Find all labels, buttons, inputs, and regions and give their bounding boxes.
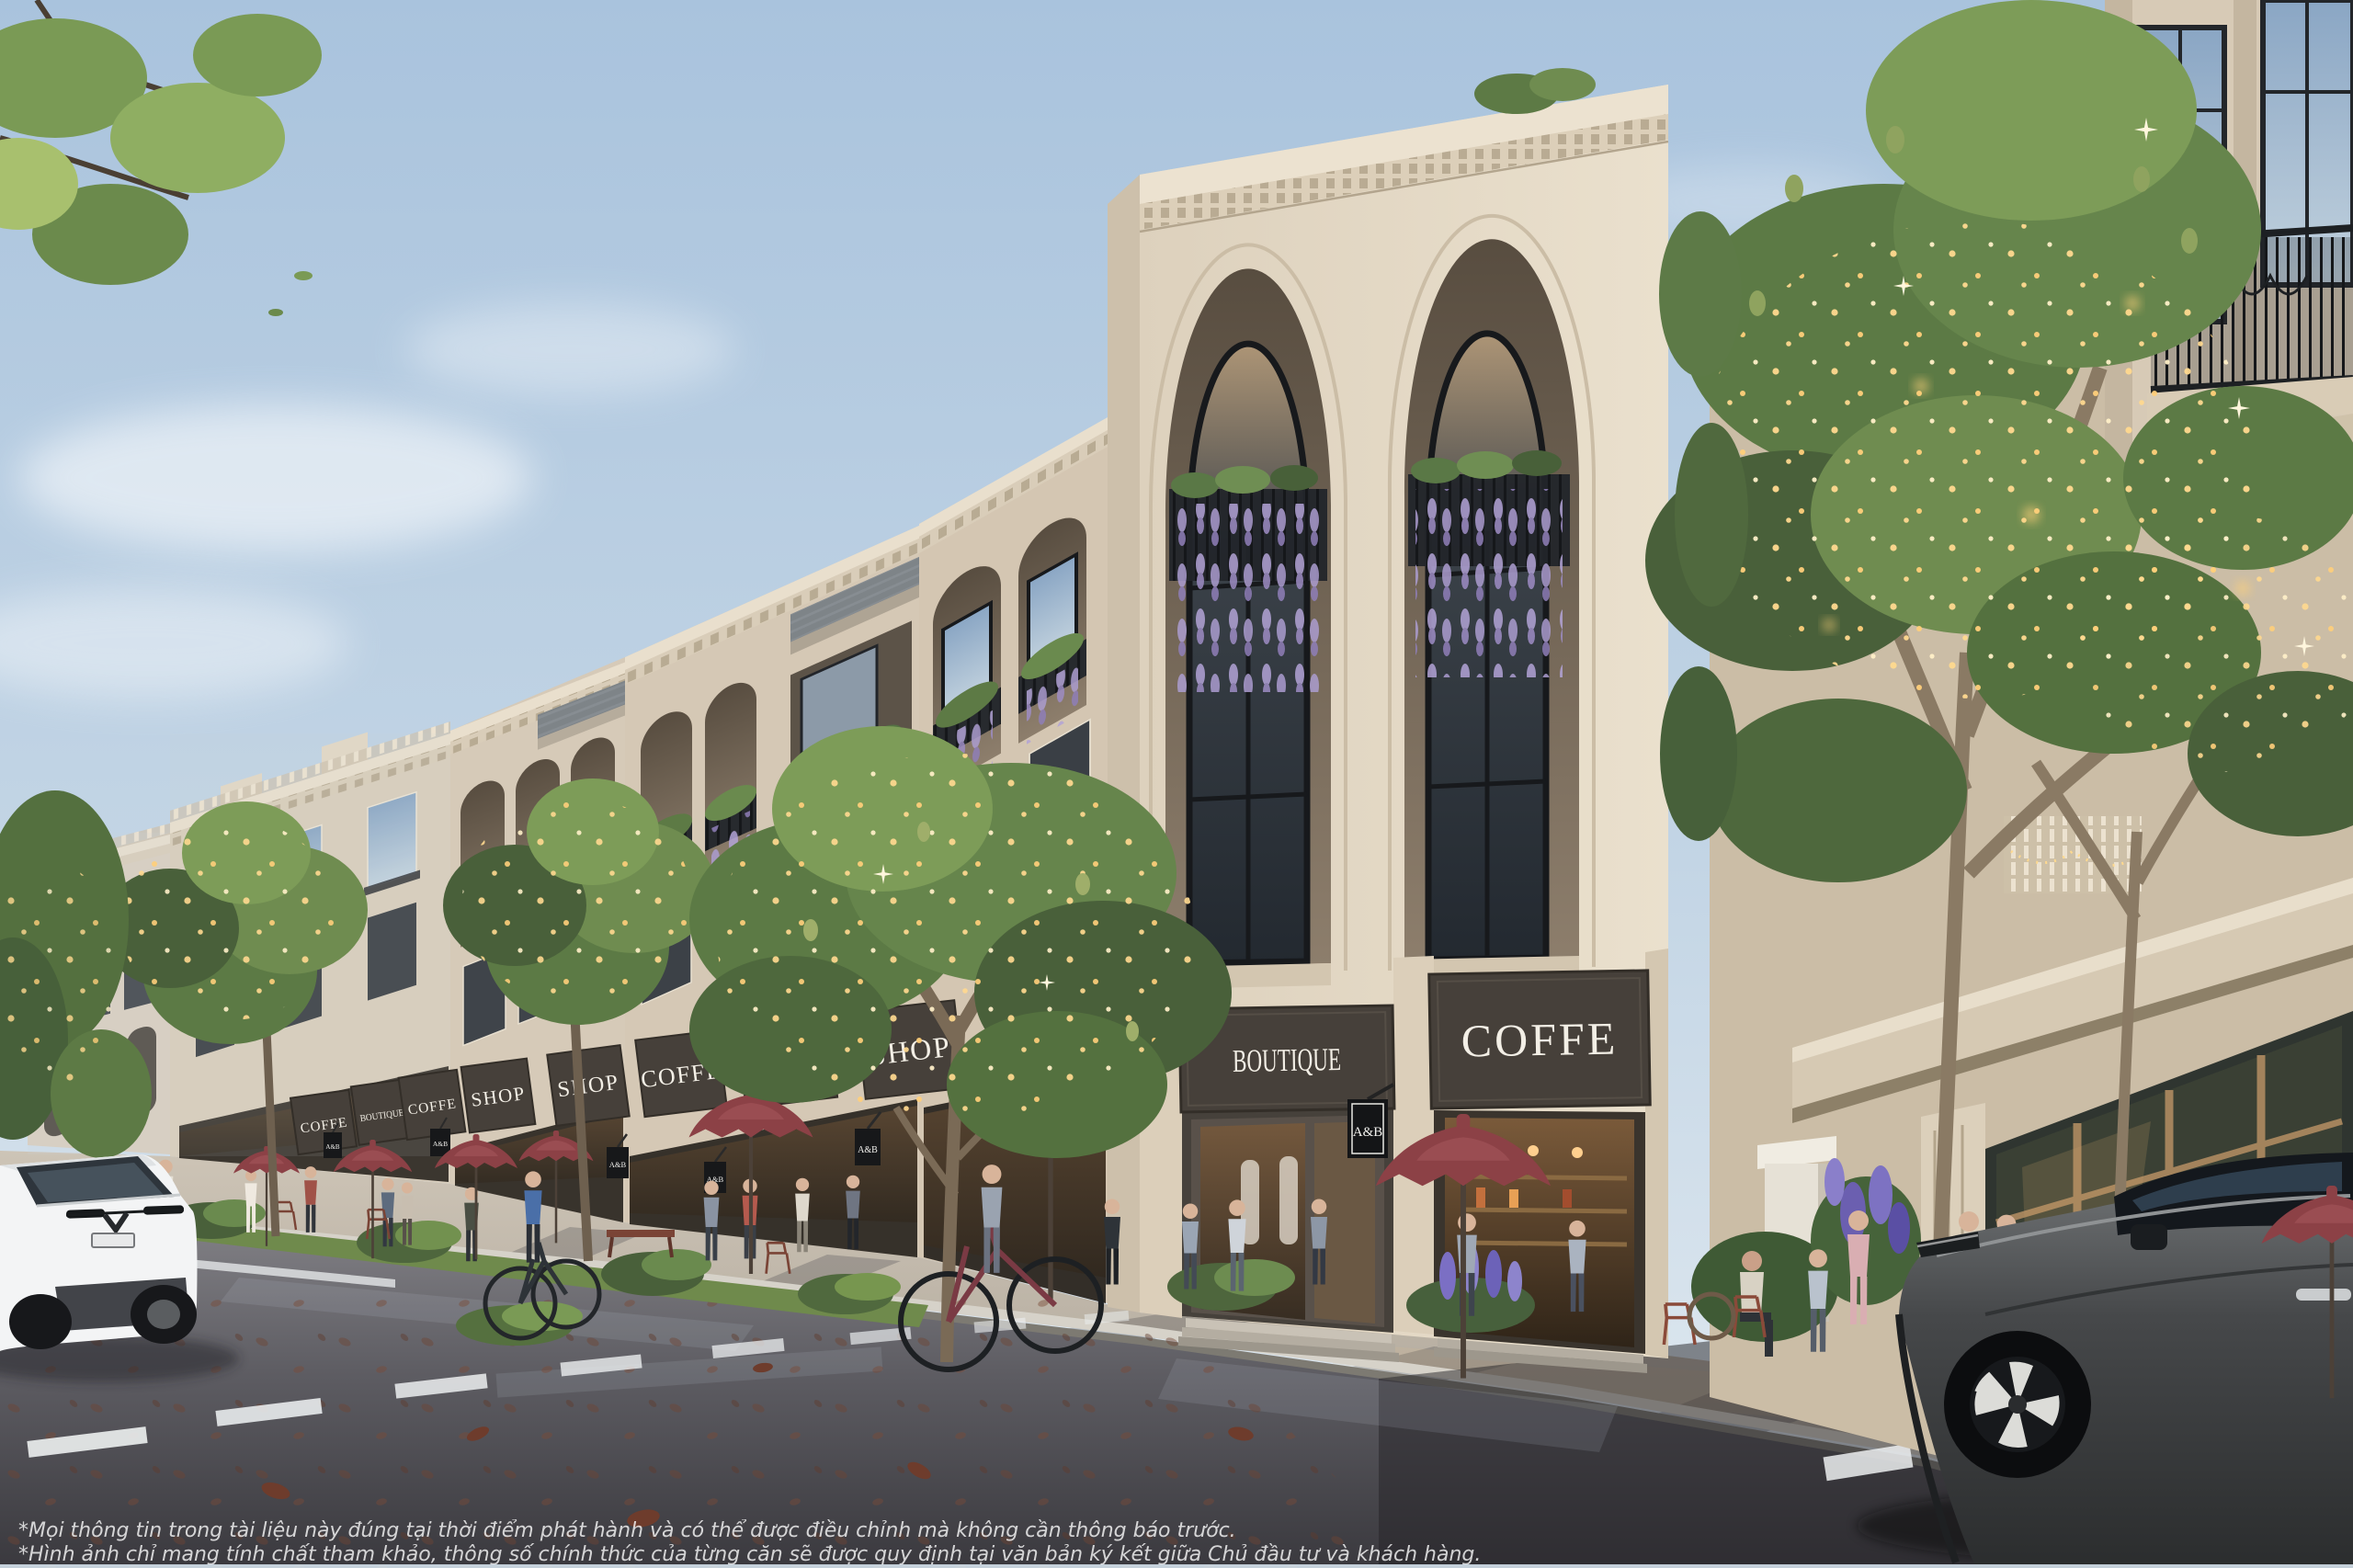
hanging-sign-label: A&B [1353,1125,1383,1140]
storefront-sign-label: COFFE [1461,1013,1619,1067]
door-handle [2296,1289,2351,1301]
license-plate [92,1233,134,1247]
wisteria [1176,504,1324,692]
hanging-sign-label: A&B [609,1160,627,1169]
storefront-sign-label: BOUTIQUE [1233,1041,1342,1079]
bench [607,1230,675,1237]
bottom-edge-strip [0,1564,2353,1568]
hanging-sign-label: A&B [858,1145,878,1155]
hanging-sign-label: A&B [433,1140,448,1148]
street-render-scene: COFFE BOUTIQUE COFFE SHOP SHOP COFFE COF… [0,0,2353,1568]
storefront-sign: SHOP [547,1045,629,1126]
hanging-sign-label: A&B [325,1143,340,1151]
side-mirror [2131,1224,2167,1250]
wisteria [1415,489,1563,677]
storefront-sign: COFFE [1429,971,1651,1108]
disclaimer-line-1: *Mọi thông tin trong tài liệu này đúng t… [18,1519,1236,1542]
disclaimer-line-2: *Hình ảnh chỉ mang tính chất tham khảo, … [18,1543,1481,1566]
wheel [1944,1331,2091,1478]
storefront-sign: SHOP [461,1059,536,1133]
